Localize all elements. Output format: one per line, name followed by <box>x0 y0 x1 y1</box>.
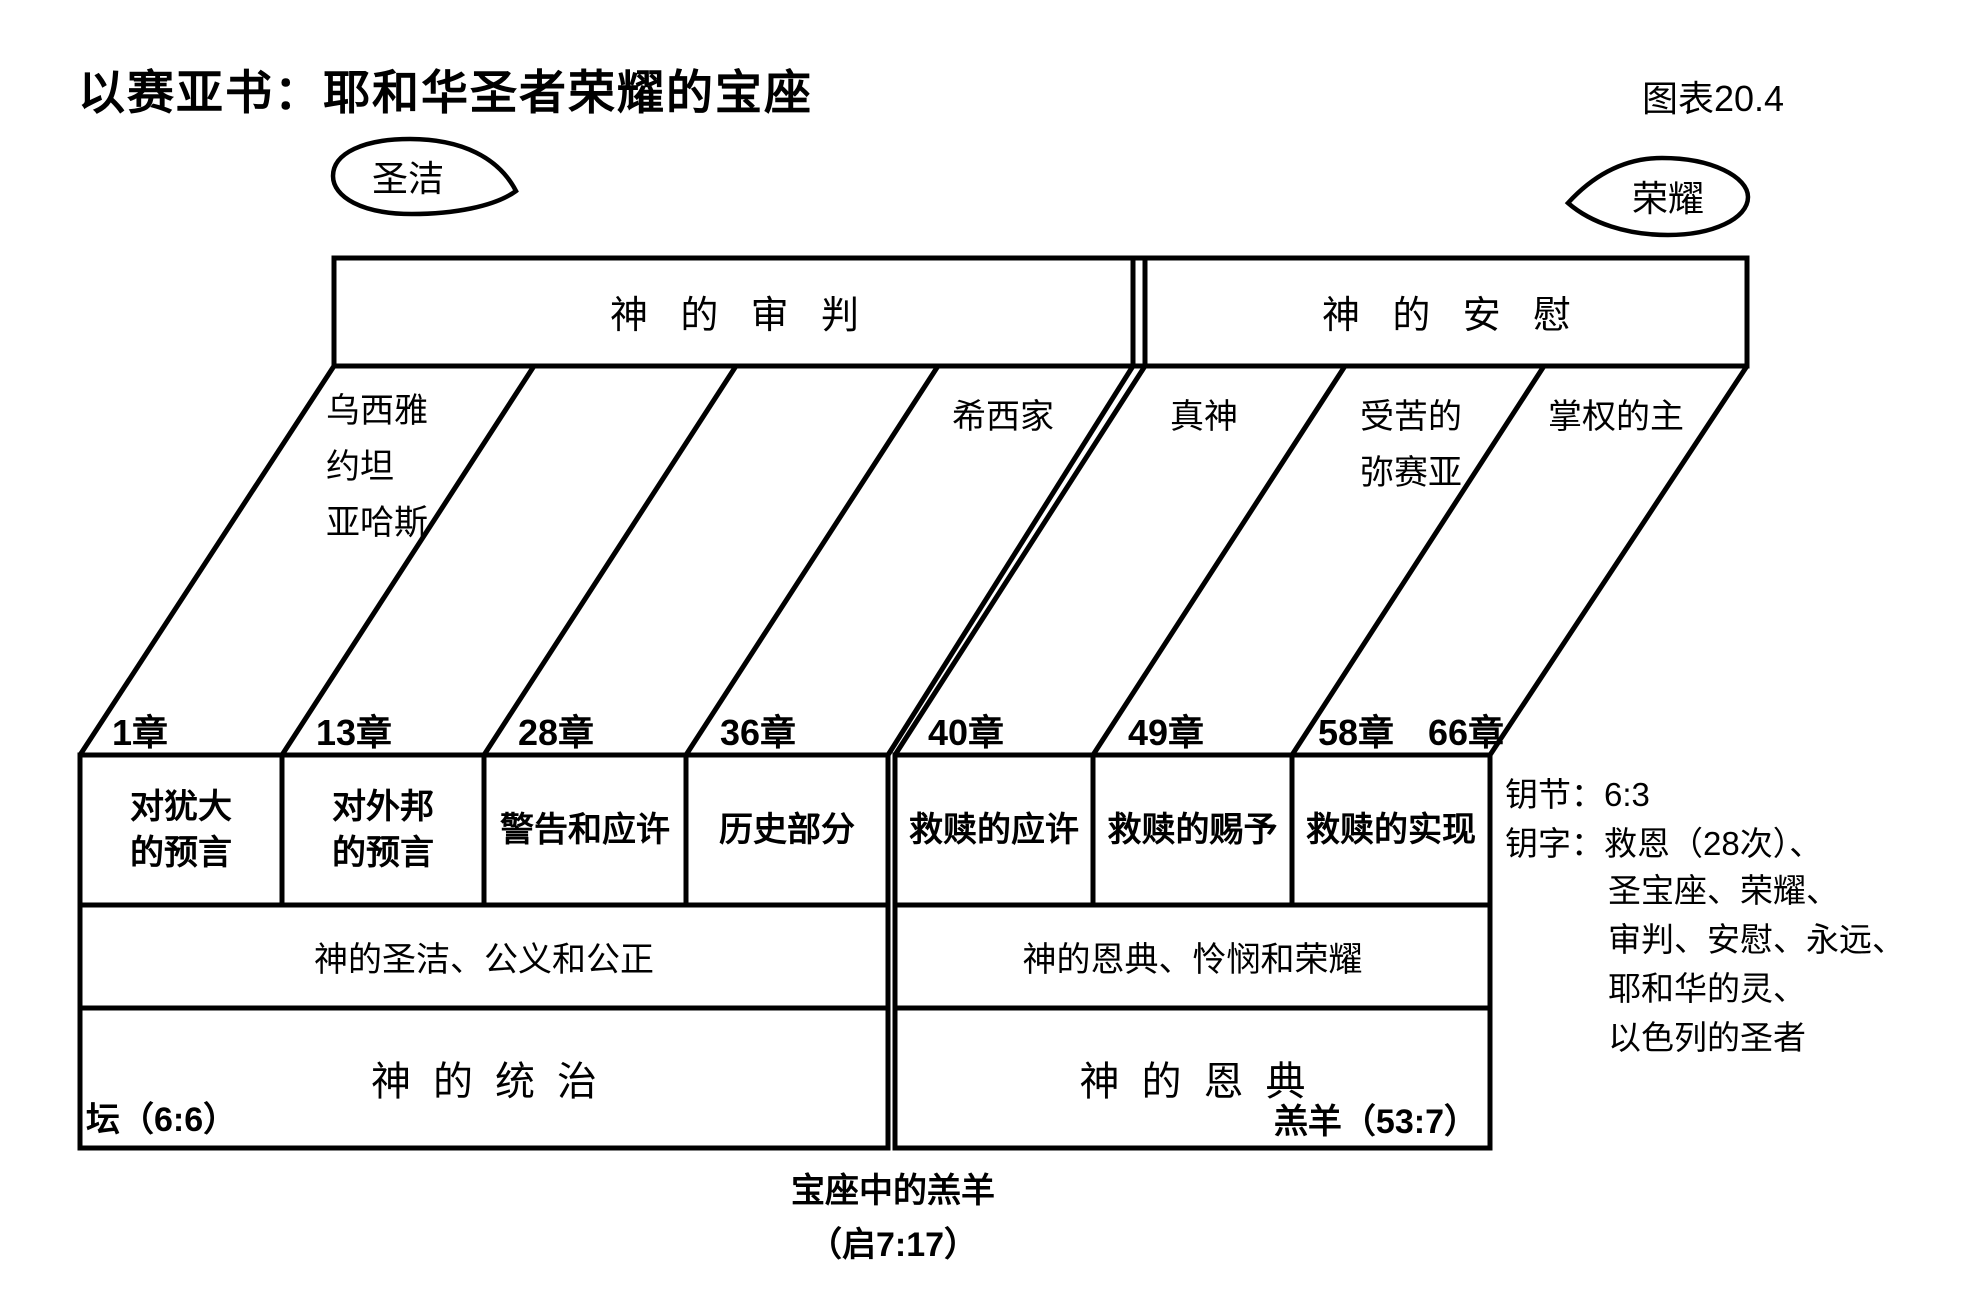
slant-divider-3 <box>686 366 938 755</box>
era-label-hezekiah: 希西家 <box>952 390 1054 446</box>
era-label-true-god: 真神 <box>1170 390 1238 446</box>
foundation-rule-text: 神的统治 <box>371 1049 619 1107</box>
chapter-marker-66: 66章 <box>1428 704 1504 756</box>
chapter-marker-49: 49章 <box>1128 704 1204 756</box>
chapter-marker-28: 28章 <box>518 704 594 756</box>
band-comfort-text: 神的安慰 <box>1322 284 1603 339</box>
era-label-reigning-lord: 掌权的主 <box>1548 390 1684 446</box>
era-label-kings: 乌西雅 约坦 亚哈斯 <box>326 384 428 552</box>
chapter-marker-58: 58章 <box>1318 704 1394 756</box>
section-cell-redemption-realized: 救赎的实现 <box>1292 755 1490 905</box>
lamb-note: 羔羊（53:7） <box>1100 1094 1478 1143</box>
slant-divider-2 <box>484 366 736 755</box>
key-words: 钥字：救恩（28次）、 <box>1505 817 1822 865</box>
band-comfort-label: 神的安慰 <box>1146 258 1747 364</box>
section-cell-redemption-promised: 救赎的应许 <box>895 755 1093 905</box>
slant-left-edge <box>80 366 334 755</box>
band-judgment-text: 神的审判 <box>610 284 891 339</box>
theme-left-label: 神的圣洁、公义和公正 <box>80 905 888 1008</box>
era-label-suffering-messiah: 受苦的 弥赛亚 <box>1360 390 1462 502</box>
isaiah-structure-chart: 以赛亚书：耶和华圣者荣耀的宝座 图表20.4 圣洁 荣耀 神的审判 神的安慰 乌… <box>0 0 1967 1305</box>
section-cell-gentile-prophecy: 对外邦 的预言 <box>282 755 484 905</box>
section-cell-warnings-promises: 警告和应许 <box>484 755 686 905</box>
section-cell-judah-prophecy: 对犹大 的预言 <box>80 755 282 905</box>
theme-right-label: 神的恩典、怜悯和荣耀 <box>895 905 1490 1008</box>
throne-lamb-note: 宝座中的羔羊 （启7:17） <box>693 1164 1093 1272</box>
chapter-marker-40: 40章 <box>928 704 1004 756</box>
section-cell-redemption-given: 救赎的赐予 <box>1093 755 1292 905</box>
key-words-continued: 圣宝座、荣耀、 审判、安慰、永远、 耶和华的灵、 以色列的圣者 <box>1608 866 1905 1062</box>
band-judgment-label: 神的审判 <box>336 258 1133 364</box>
key-verse: 钥节：6:3 <box>1505 768 1650 816</box>
chapter-marker-13: 13章 <box>316 704 392 756</box>
altar-note: 坛（6:6） <box>86 1092 237 1141</box>
callout-holiness: 圣洁 <box>330 139 486 213</box>
callout-glory: 荣耀 <box>1592 158 1744 234</box>
page-title: 以赛亚书：耶和华圣者荣耀的宝座 <box>78 54 813 123</box>
section-cell-historical: 历史部分 <box>686 755 888 905</box>
chart-number: 图表20.4 <box>1642 70 1784 122</box>
chapter-marker-1: 1章 <box>112 704 168 756</box>
chapter-marker-36: 36章 <box>720 704 796 756</box>
